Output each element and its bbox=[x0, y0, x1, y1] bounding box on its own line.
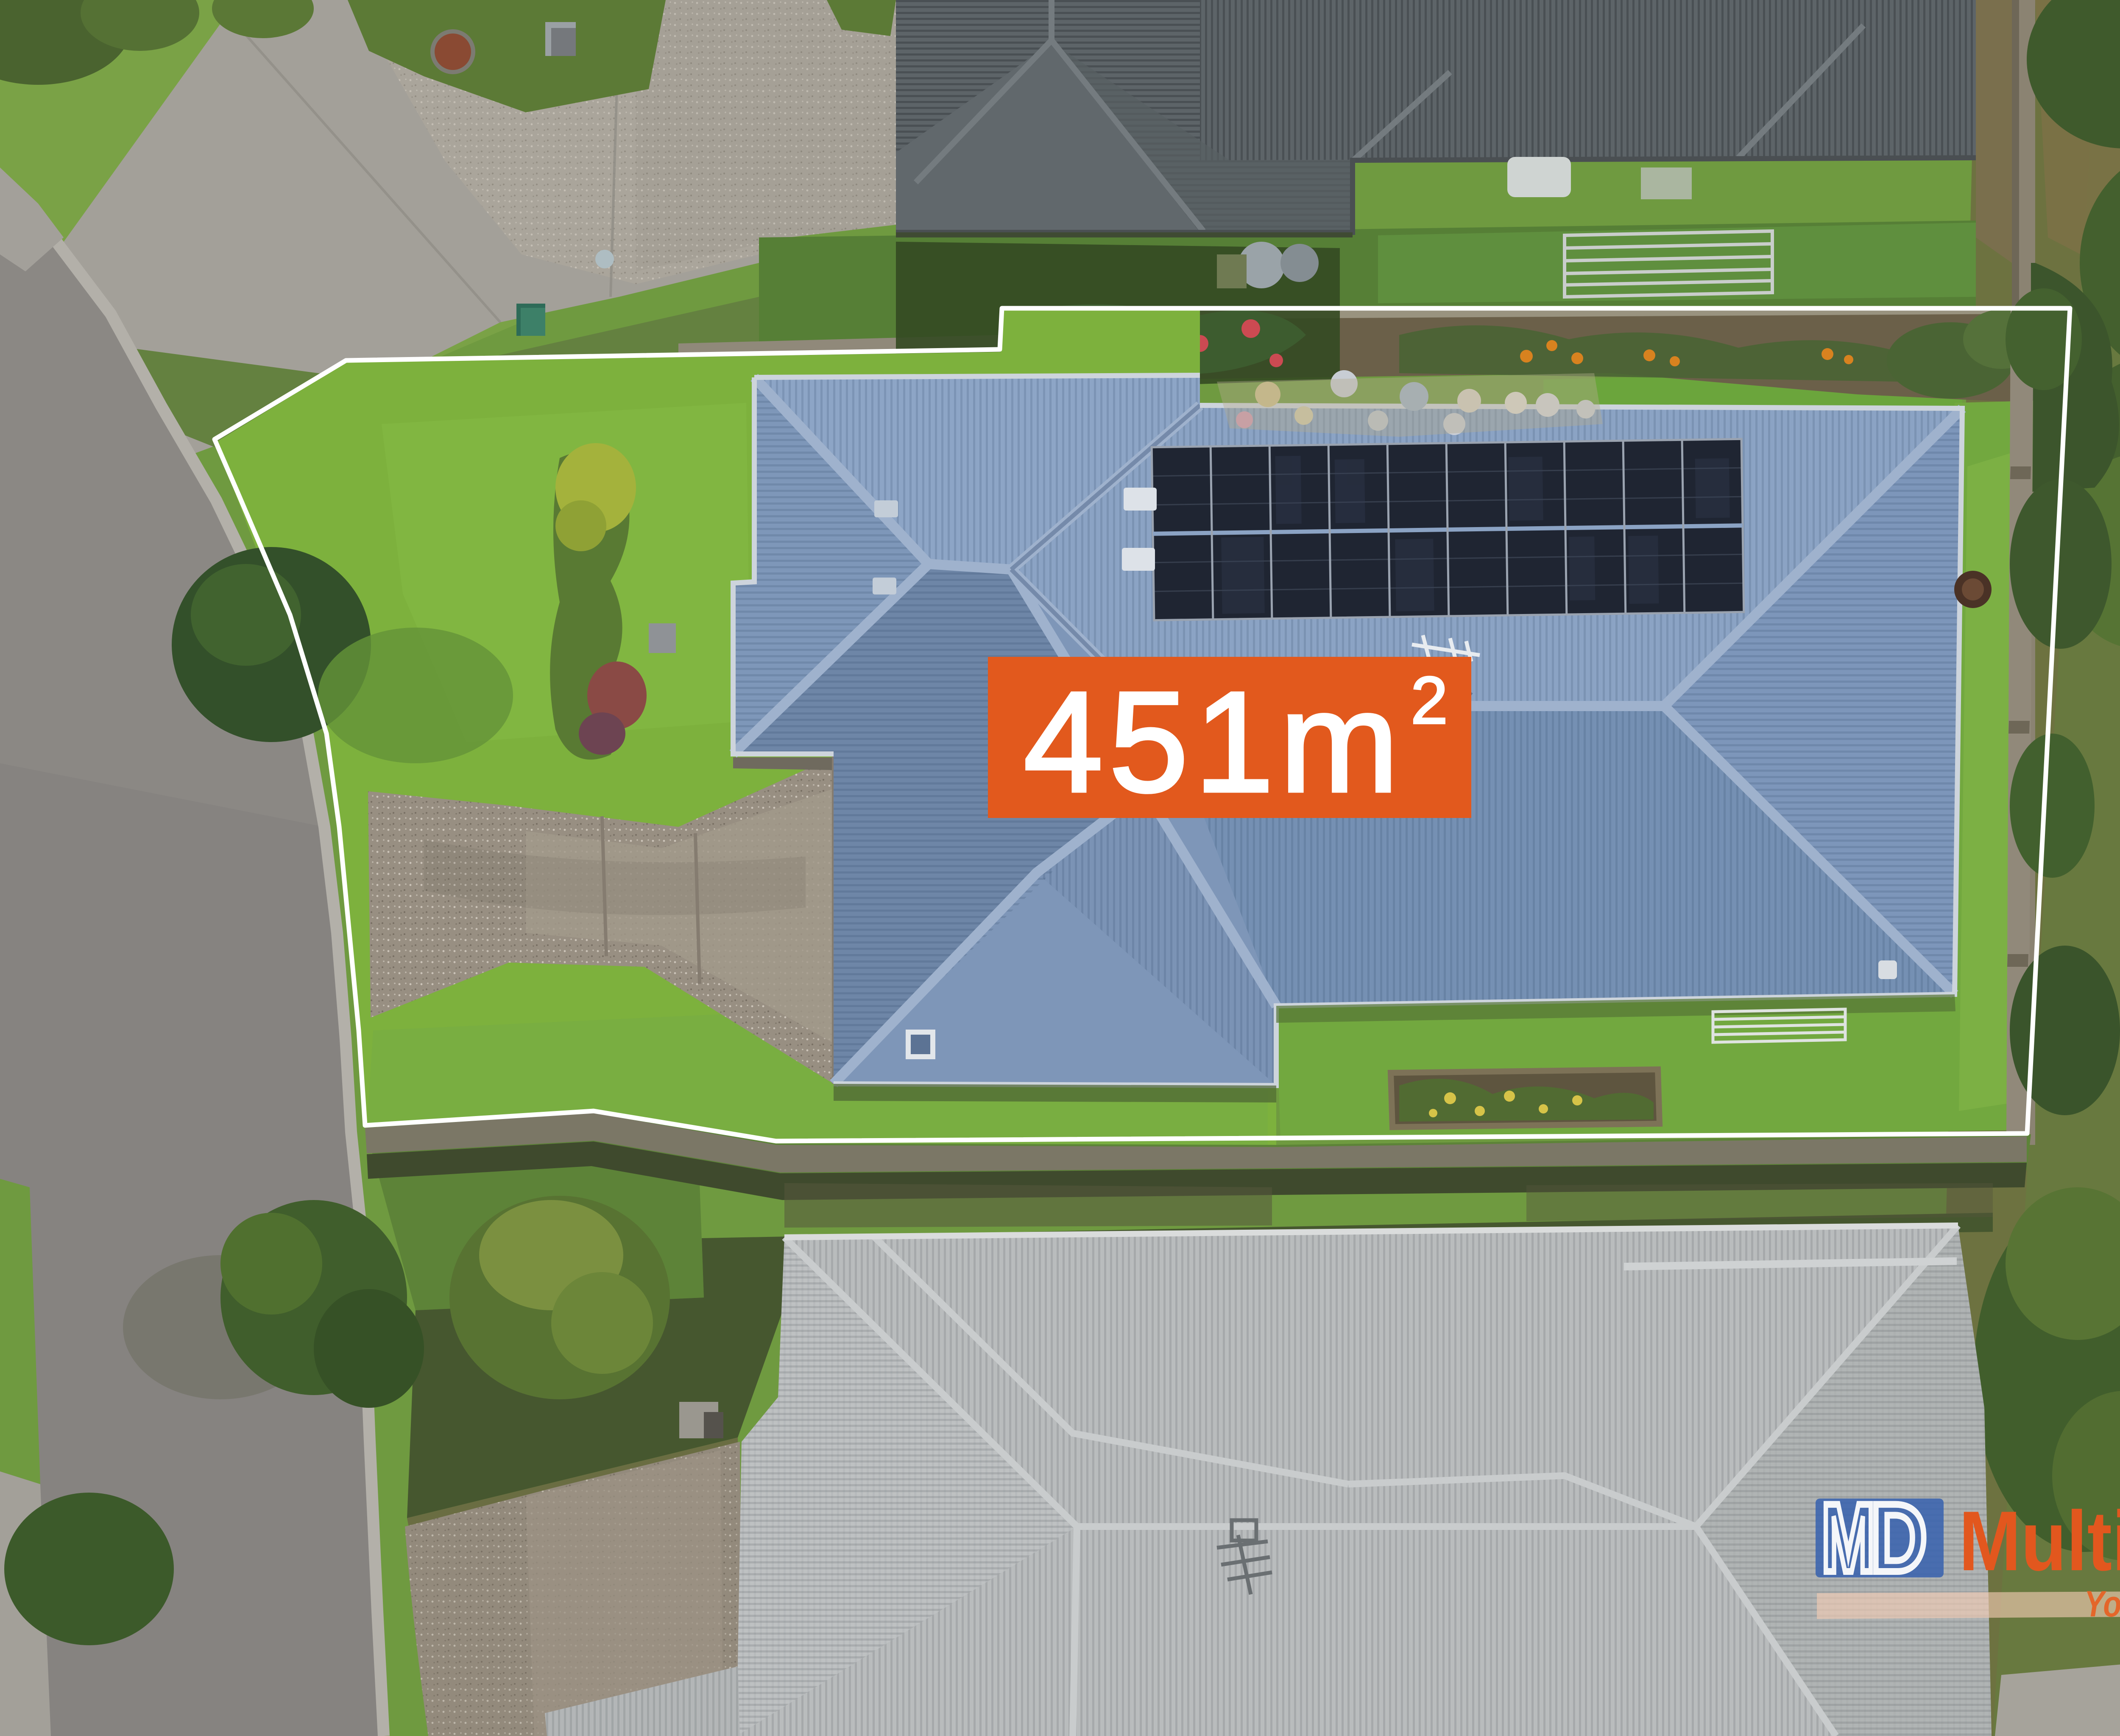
svg-text:Multi: Multi bbox=[1959, 1494, 2120, 1588]
svg-text:M: M bbox=[1822, 1484, 1875, 1592]
svg-text:Your Dynamic Real Estate: Your Dynamic Real Estate bbox=[2084, 1584, 2120, 1624]
svg-text:D: D bbox=[1871, 1483, 1927, 1592]
svg-text:451m: 451m bbox=[1024, 662, 1405, 822]
svg-text:2: 2 bbox=[1411, 663, 1448, 738]
